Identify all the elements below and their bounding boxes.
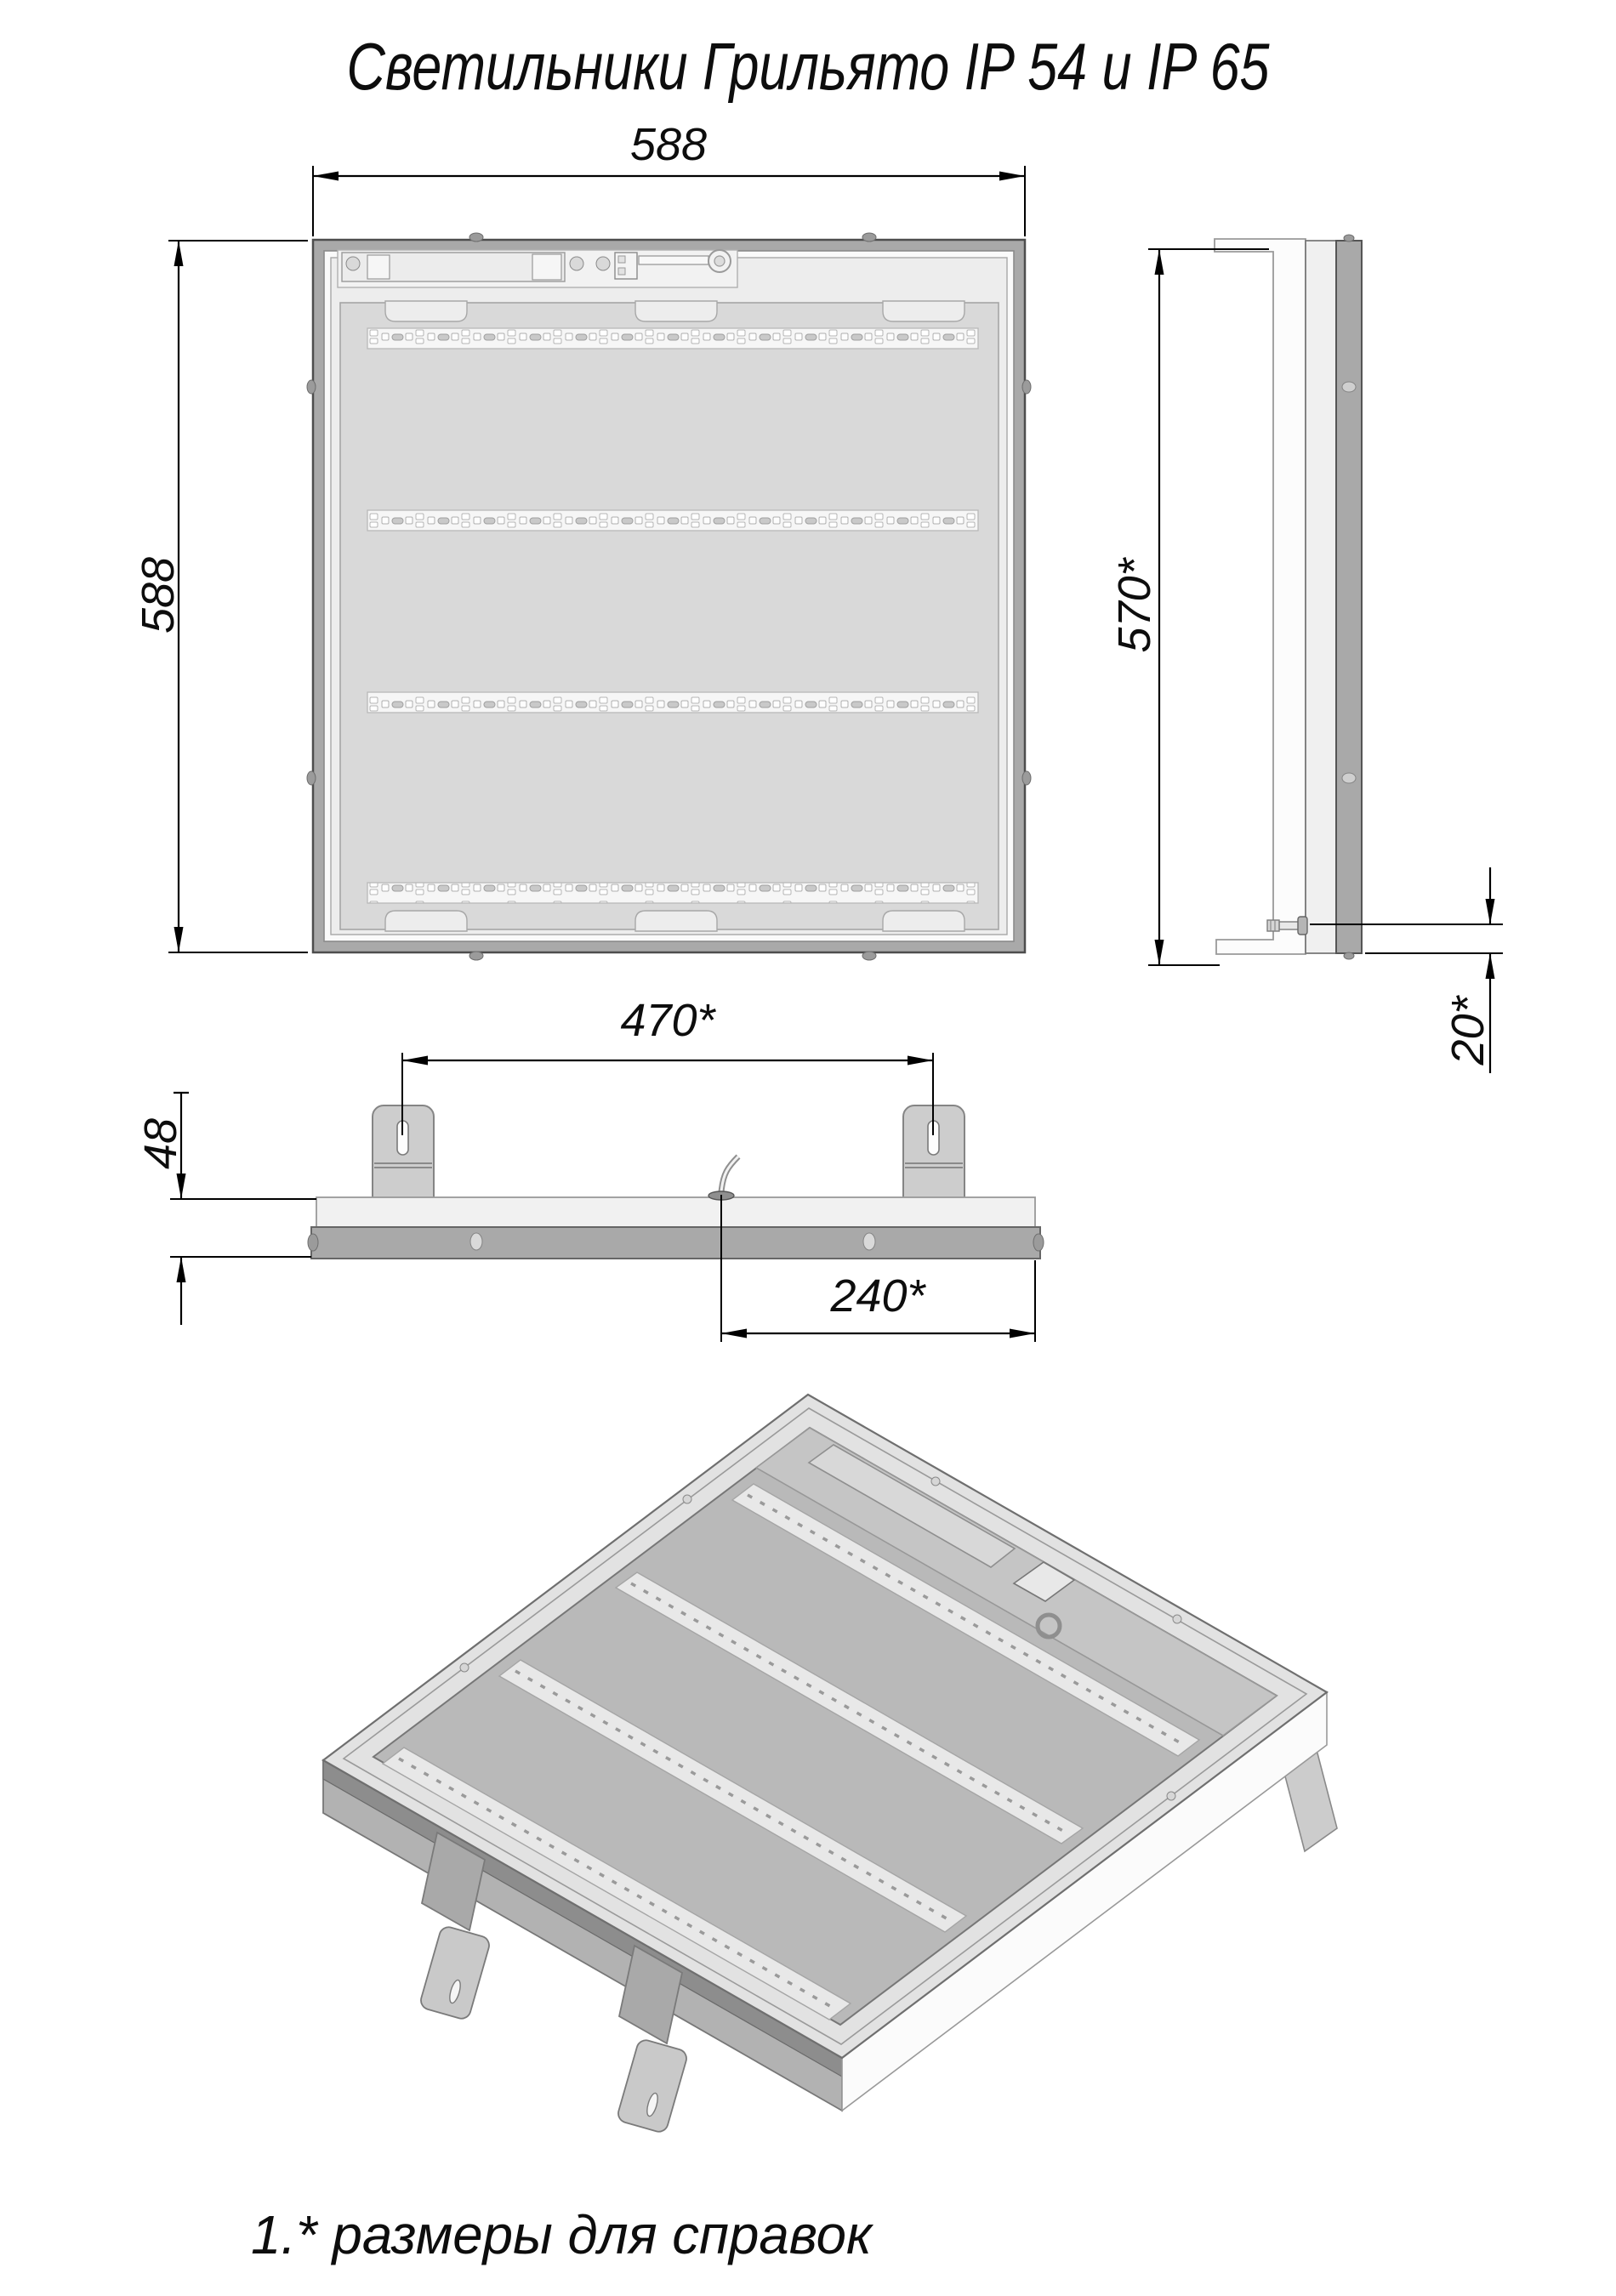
rivet [1173,1615,1181,1623]
rivet [863,1233,875,1250]
led-strip [367,883,978,903]
side-profile-outline [1215,239,1306,954]
dimension-front-height: 588 [133,241,308,952]
bracket-foot [418,1925,491,2021]
led-strip [367,328,978,349]
dim-label-588-top: 588 [630,119,707,170]
driver-ac-connector [532,254,561,280]
dim-label-48: 48 [135,1118,186,1169]
screw-head [346,257,360,270]
rivet [683,1495,691,1503]
drawing-sheet: Светильники Грильято IP 54 и IP 65 [0,0,1616,2296]
front-view [307,233,1031,960]
bracket-foot [616,2038,688,2134]
cable-gland-hole [714,256,725,266]
dimension-side-height: 570* [1109,249,1269,965]
dimension-profile-height: 48 [135,1093,316,1325]
side-view [1215,235,1362,959]
dimension-bracket-spacing: 470* [402,995,933,1135]
rivet [470,1233,482,1250]
isometric-view [323,1395,1337,2134]
edge-screw [308,1234,318,1251]
reflector-notch [635,911,717,931]
reflector-panel [340,303,999,929]
rivet [460,1663,469,1672]
edge-screw [469,952,483,960]
reflector-notch [385,301,467,321]
side-profile-frame [1336,241,1362,953]
dim-label-20: 20* [1442,994,1494,1066]
dim-label-470: 470* [620,995,716,1046]
reflector-notch [635,301,717,321]
dim-label-588-left: 588 [133,557,184,634]
profile-body-strip [316,1197,1035,1227]
edge-screw [862,233,876,242]
screw-head [570,257,583,270]
terminal-contact [618,256,625,263]
rivet [1342,382,1356,392]
profile-frame-strip [311,1227,1040,1259]
cable-gland-thread [1267,920,1279,931]
technical-drawing: Светильники Грильято IP 54 и IP 65 [0,0,1616,2296]
led-strip [367,510,978,531]
reflector-notch [385,911,467,931]
led-strip [367,692,978,713]
edge-screw [1344,235,1354,242]
edge-screw [307,380,316,394]
edge-screw [1344,952,1354,959]
reflector-notch [883,301,964,321]
side-profile-body [1306,241,1336,953]
terminal-contact [618,268,625,275]
edge-screw [1022,771,1031,785]
dimension-front-width: 588 [313,119,1025,236]
edge-screw [469,233,483,242]
page-title: Светильники Грильято IP 54 и IP 65 [347,29,1270,104]
rivet [1167,1792,1175,1800]
supply-cable [639,256,708,264]
rivet [931,1477,940,1486]
cable-gland-nut [1298,917,1307,935]
reflector-notch [883,911,964,931]
screw-head [596,257,610,270]
dim-label-570: 570* [1109,556,1160,652]
edge-screw [307,771,316,785]
edge-screw [862,952,876,960]
rivet [1342,773,1356,783]
cable-gland-shaft [1279,922,1300,929]
driver-dc-connector [367,255,390,279]
dim-label-240: 240* [829,1270,926,1321]
reference-note: 1.* размеры для справок [251,2204,874,2265]
edge-screw [1033,1234,1044,1251]
edge-screw [1022,380,1031,394]
